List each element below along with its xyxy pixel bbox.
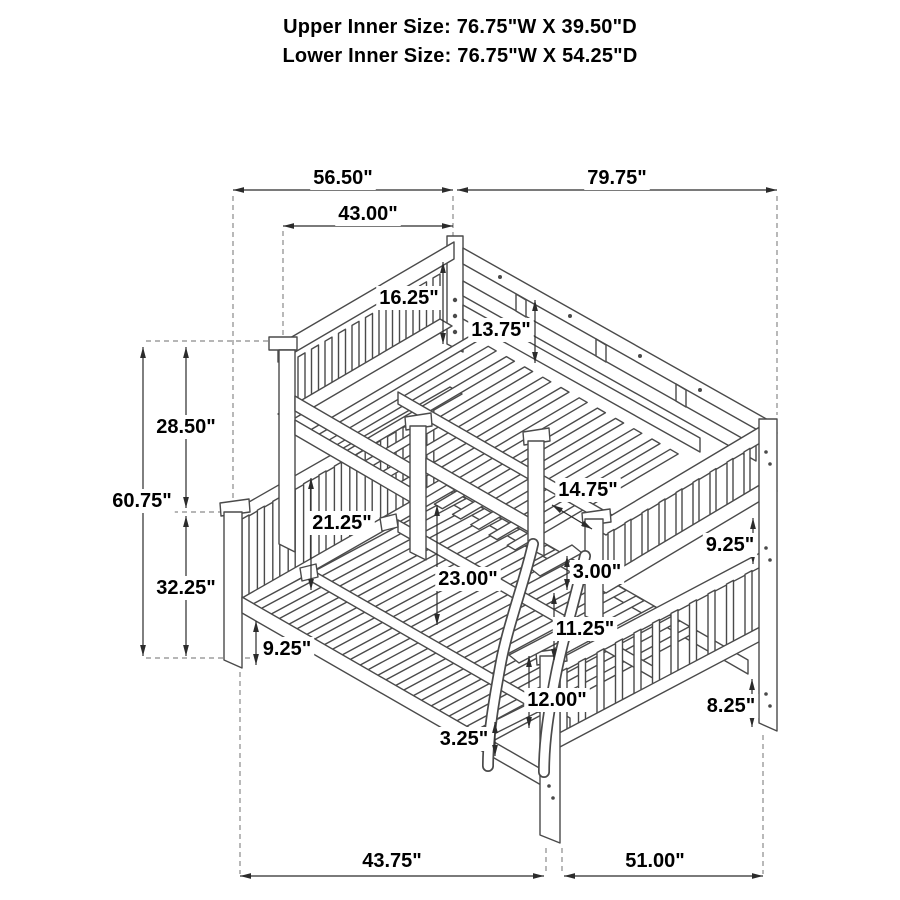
- slat: [727, 580, 734, 648]
- dimension-label: 3.25": [440, 728, 488, 750]
- dimension-label: 43.00": [338, 203, 398, 225]
- slat: [671, 610, 678, 678]
- slat: [745, 571, 752, 639]
- dimension-label: 12.00": [527, 689, 587, 711]
- dimension-label: 60.75": [112, 490, 172, 512]
- slat: [242, 515, 249, 599]
- upper-head-panel-cap: [269, 337, 297, 350]
- slat: [616, 639, 623, 707]
- dimension-43.00-in: 43.00": [283, 202, 453, 229]
- dimension-60.75-in: 60.75": [109, 347, 175, 656]
- far-right-post: [759, 419, 777, 731]
- slat: [257, 506, 264, 590]
- dimension-label: 16.25": [379, 287, 439, 309]
- upper-far-guardrail-bottom: [463, 281, 756, 461]
- dimension-label: 9.25": [706, 534, 754, 556]
- dimension-51.00-in: 51.00": [564, 849, 763, 879]
- dimension-label: 23.00": [438, 568, 498, 590]
- dimension-label: 43.75": [362, 850, 422, 872]
- dimension-56.50-in: 56.50": [233, 166, 453, 193]
- dimension-label: 8.25": [707, 695, 755, 717]
- upper-head-post: [279, 350, 295, 552]
- slat: [708, 590, 715, 658]
- dimension-28.50-in: 28.50": [153, 347, 219, 508]
- lower-head-post: [224, 512, 242, 668]
- dimension-label: 32.25": [156, 577, 216, 599]
- dimension-label: 3.00": [573, 561, 621, 583]
- dimension-79.75-in: 79.75": [457, 166, 777, 193]
- dimension-label: 28.50": [156, 416, 216, 438]
- slat: [597, 649, 604, 717]
- dimension-label: 14.75": [558, 479, 618, 501]
- dimension-3.25-in: 3.25": [437, 722, 498, 756]
- slat: [653, 619, 660, 687]
- dimension-label: 11.25": [556, 618, 614, 640]
- dimension-32.25-in: 32.25": [153, 516, 219, 656]
- slat: [634, 629, 641, 697]
- dimension-label: 9.25": [263, 638, 311, 660]
- dimension-label: 56.50": [313, 167, 373, 189]
- dimension-8.25-in: 8.25": [704, 679, 758, 727]
- dimension-label: 51.00": [625, 850, 685, 872]
- dimension-43.75-in: 43.75": [240, 849, 544, 879]
- guard-post: [410, 426, 426, 560]
- dimension-label: 13.75": [471, 319, 531, 341]
- bunk-bed-diagram: 56.50"79.75"43.00"16.25"13.75"28.50"60.7…: [0, 0, 900, 900]
- dimension-label: 79.75": [587, 167, 647, 189]
- slat: [690, 600, 697, 668]
- dimension-label: 21.25": [312, 512, 372, 534]
